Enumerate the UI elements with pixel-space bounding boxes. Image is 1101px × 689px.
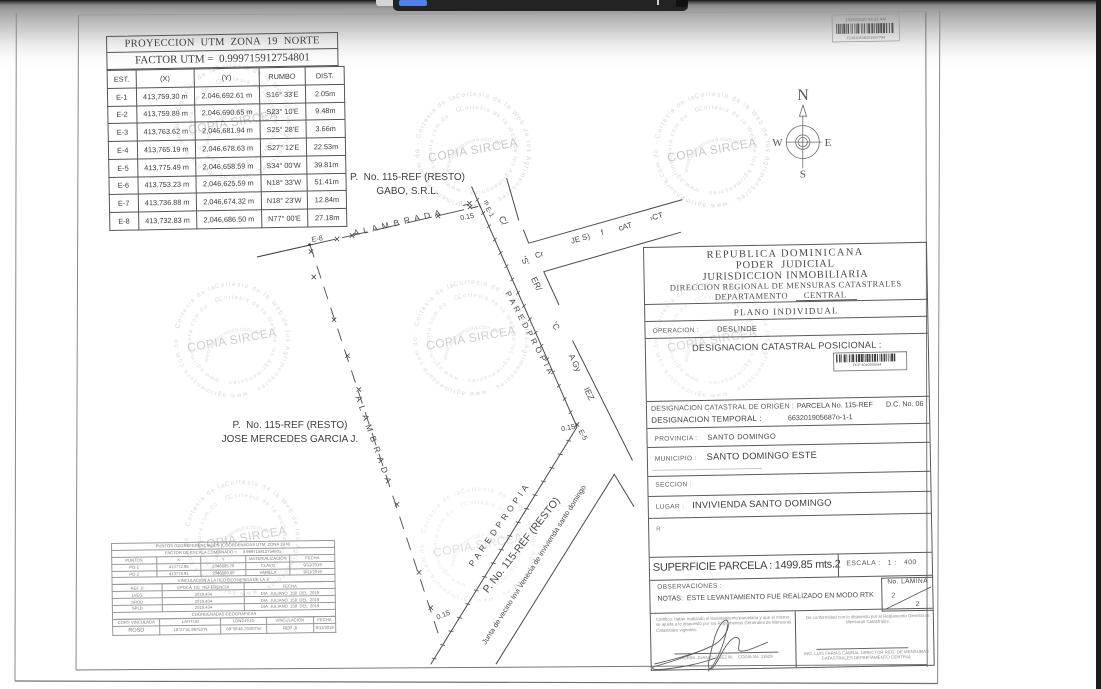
svg-text:0.15: 0.15 bbox=[435, 608, 451, 622]
svg-text:F1362043E551647794: F1362043E551647794 bbox=[847, 36, 886, 41]
svg-text:Cг: Cг bbox=[534, 249, 545, 260]
svg-text:E: E bbox=[825, 137, 832, 149]
svg-text:E-5: E-5 bbox=[577, 428, 590, 442]
svg-text:’C: ’C bbox=[549, 320, 562, 332]
svg-text:ER/: ER/ bbox=[529, 275, 544, 293]
svg-text:2: 2 bbox=[891, 592, 895, 599]
svg-text:E-8: E-8 bbox=[311, 233, 324, 244]
svg-text:A L A M B R A D A: A L A M B R A D A bbox=[352, 207, 442, 238]
svg-text:C/: C/ bbox=[497, 214, 510, 227]
svg-text:DCP 4010292644: DCP 4010292644 bbox=[853, 363, 882, 368]
svg-text:15/05/2020 08:21 AM: 15/05/2020 08:21 AM bbox=[845, 17, 886, 23]
svg-text:JE S): JE S) bbox=[570, 231, 592, 245]
svg-text:0.15: 0.15 bbox=[459, 211, 474, 222]
svg-text:’S’: ’S’ bbox=[519, 254, 532, 267]
svg-text:›CT: ›CT bbox=[649, 210, 664, 222]
svg-text:W: W bbox=[772, 137, 783, 149]
svg-text:0.15: 0.15 bbox=[560, 422, 575, 433]
svg-text:сAT: сAT bbox=[618, 220, 634, 232]
svg-text:A Gу: A Gу bbox=[567, 352, 584, 374]
svg-text:f: f bbox=[600, 228, 605, 237]
svg-text:N: N bbox=[797, 87, 809, 104]
svg-text:S: S bbox=[800, 169, 806, 181]
svg-text:IEZ: IEZ bbox=[582, 386, 597, 402]
svg-text:E-1: E-1 bbox=[484, 206, 495, 219]
svg-text:2: 2 bbox=[916, 601, 920, 608]
